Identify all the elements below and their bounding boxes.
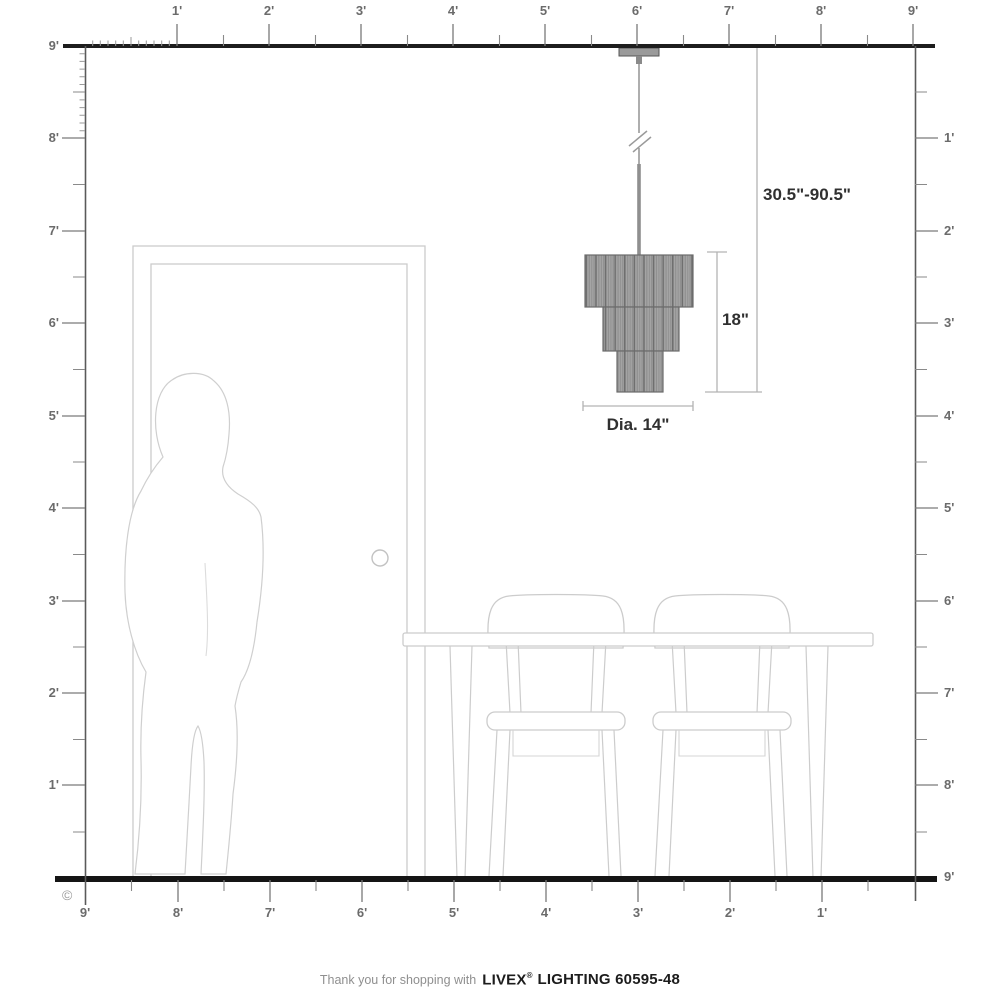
wire-break-marks-icon	[629, 131, 651, 152]
ruler-label: 6'	[632, 2, 642, 20]
hanging-height-label: 30.5"-90.5"	[763, 185, 851, 205]
dining-table-legs	[450, 646, 828, 878]
registered-trademark-icon: ®	[527, 971, 533, 980]
ruler-label: 9'	[25, 37, 59, 55]
ruler-label: 8'	[25, 129, 59, 147]
ruler-label: 5'	[944, 499, 954, 517]
ruler-label: 4'	[25, 499, 59, 517]
ruler-label: 4'	[448, 2, 458, 20]
ruler-label: 3'	[633, 904, 643, 922]
copyright-symbol: ©	[62, 887, 72, 903]
woman-silhouette	[125, 373, 263, 874]
brand-name: LIVEX	[482, 971, 526, 988]
ruler-label: 8'	[944, 776, 954, 794]
door-knob	[372, 550, 388, 566]
scale-figure-diagram	[0, 0, 1000, 1000]
ruler-label: 4'	[944, 407, 954, 425]
product-code: LIGHTING 60595-48	[537, 971, 680, 988]
ruler-label: 6'	[25, 314, 59, 332]
ruler-label: 8'	[816, 2, 826, 20]
ruler-label: 2'	[264, 2, 274, 20]
ruler-label: 5'	[540, 2, 550, 20]
chandelier-tier-3	[617, 351, 663, 392]
ruler-label: 9'	[944, 868, 954, 886]
fixture-diameter-label: Dia. 14"	[607, 415, 670, 435]
left-ruler-half-ticks	[73, 92, 85, 832]
ruler-label: 9'	[908, 2, 918, 20]
ruler-label: 1'	[817, 904, 827, 922]
ruler-label: 6'	[944, 592, 954, 610]
ruler-label: 5'	[449, 904, 459, 922]
ruler-label: 1'	[172, 2, 182, 20]
ruler-label: 1'	[25, 776, 59, 794]
chandelier-canopy	[619, 48, 659, 56]
ruler-label: 7'	[265, 904, 275, 922]
chandelier-downrod	[637, 164, 641, 256]
footer: Thank you for shopping withLIVEX®LIGHTIN…	[0, 971, 1000, 989]
footer-message: Thank you for shopping with	[320, 973, 476, 987]
top-ruler-major-ticks	[177, 24, 913, 46]
ruler-label: 6'	[357, 904, 367, 922]
ruler-label: 8'	[173, 904, 183, 922]
ruler-label: 3'	[356, 2, 366, 20]
ruler-label: 7'	[724, 2, 734, 20]
hanging-height-dimension-line	[705, 48, 762, 392]
ruler-label: 4'	[541, 904, 551, 922]
ruler-label: 3'	[25, 592, 59, 610]
diameter-dimension-line	[583, 401, 693, 411]
dining-table-top	[403, 633, 873, 646]
ruler-label: 2'	[25, 684, 59, 702]
fixture-height-label: 18"	[722, 310, 749, 330]
ruler-label: 3'	[944, 314, 954, 332]
chandelier-tier-1	[585, 255, 693, 307]
ruler-label: 2'	[725, 904, 735, 922]
ruler-label: 7'	[944, 684, 954, 702]
ruler-label: 1'	[944, 129, 954, 147]
ruler-label: 2'	[944, 222, 954, 240]
ruler-label: 7'	[25, 222, 59, 240]
ruler-label: 9'	[80, 904, 90, 922]
ruler-label: 5'	[25, 407, 59, 425]
chandelier-tier-2	[603, 307, 679, 351]
chandelier-canopy-stem	[636, 56, 642, 64]
scale-diagram-page: 1' 2' 3' 4' 5' 6' 7' 8' 9' 9' 8' 7' 6' 5…	[0, 0, 1000, 1000]
right-ruler-half-ticks	[915, 92, 927, 832]
